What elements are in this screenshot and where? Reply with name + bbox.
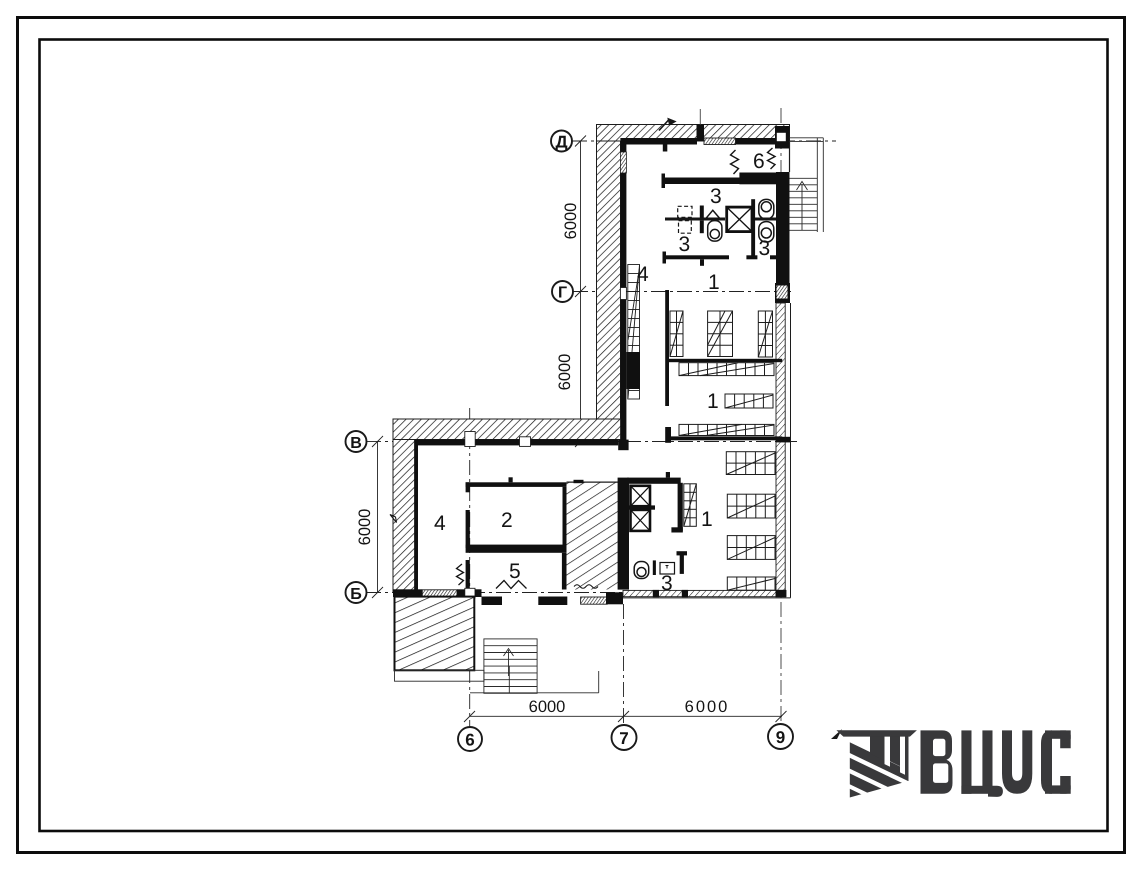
svg-text:6000: 6000: [529, 698, 566, 716]
svg-text:2: 2: [501, 509, 513, 532]
svg-text:6000: 6000: [562, 203, 580, 240]
svg-text:5: 5: [509, 560, 521, 583]
svg-text:3: 3: [710, 185, 722, 208]
svg-text:1: 1: [701, 508, 713, 531]
svg-text:Г: Г: [558, 285, 567, 302]
svg-text:6000: 6000: [356, 509, 374, 546]
svg-text:Б: Б: [350, 586, 362, 603]
svg-text:3: 3: [679, 233, 691, 256]
svg-text:7: 7: [619, 729, 628, 748]
svg-text:6: 6: [465, 731, 474, 750]
svg-text:4: 4: [434, 512, 446, 535]
svg-text:6000: 6000: [685, 698, 730, 716]
svg-text:3: 3: [759, 237, 771, 260]
svg-text:В: В: [350, 435, 362, 452]
svg-text:4: 4: [637, 263, 649, 286]
svg-text:6: 6: [753, 150, 765, 173]
svg-text:9: 9: [776, 728, 785, 747]
svg-text:1: 1: [708, 271, 720, 294]
svg-text:1: 1: [707, 390, 719, 413]
svg-text:Д: Д: [555, 133, 567, 152]
svg-text:6000: 6000: [556, 354, 574, 391]
